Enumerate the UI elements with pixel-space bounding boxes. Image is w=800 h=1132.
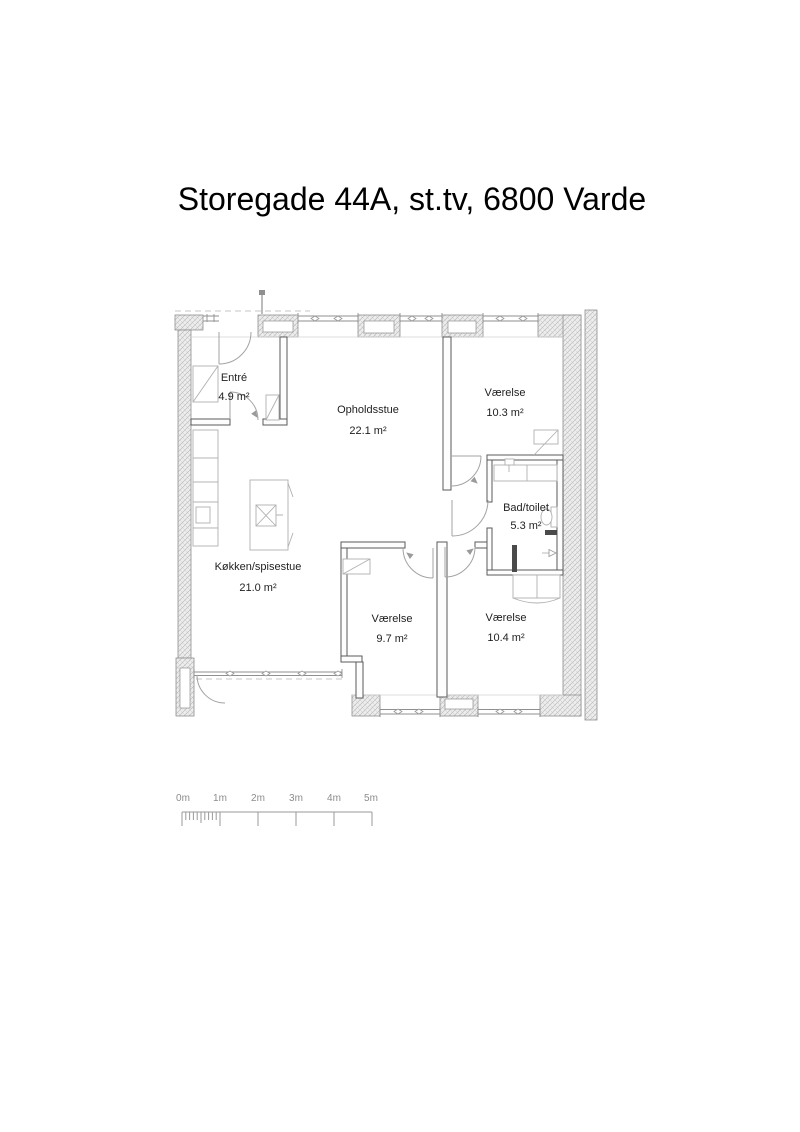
shower-drain-arrow <box>542 550 556 557</box>
room-label-opholdsstue: Opholdsstue 22.1 m² <box>337 404 399 437</box>
room-label-entre: Entré 4.9 m² <box>218 372 250 403</box>
svg-text:10.3 m²: 10.3 m² <box>486 407 524 419</box>
door-bad-toilet <box>452 500 488 536</box>
window-top-2 <box>400 313 442 323</box>
svg-text:10.4 m²: 10.4 m² <box>487 632 525 644</box>
svg-text:5m: 5m <box>364 793 378 804</box>
kitchen-island <box>250 480 293 550</box>
door-vaerelse-sw <box>403 548 433 578</box>
wardrobe-vaerelse-se <box>513 575 560 603</box>
svg-text:4m: 4m <box>327 793 341 804</box>
svg-text:0m: 0m <box>176 793 190 804</box>
svg-text:3m: 3m <box>289 793 303 804</box>
svg-text:9.7 m²: 9.7 m² <box>376 633 408 645</box>
svg-text:5.3 m²: 5.3 m² <box>510 520 542 532</box>
svg-text:Entré: Entré <box>221 372 247 384</box>
room-label-vaerelse-se: Værelse 10.4 m² <box>486 612 527 644</box>
svg-text:Værelse: Værelse <box>372 613 413 625</box>
wardrobe-vaerelse-sw <box>343 559 370 574</box>
svg-text:1m: 1m <box>213 793 227 804</box>
svg-text:Værelse: Værelse <box>485 387 526 399</box>
room-label-koekken: Køkken/spisestue 21.0 m² <box>215 561 302 594</box>
svg-text:Køkken/spisestue: Køkken/spisestue <box>215 561 302 573</box>
window-bottom-1 <box>380 707 440 717</box>
window-balcony-glazing <box>194 669 342 678</box>
floor-plan: Entré 4.9 m² Opholdsstue 22.1 m² Værelse… <box>0 0 800 1132</box>
svg-text:4.9 m²: 4.9 m² <box>218 391 250 403</box>
svg-text:21.0 m²: 21.0 m² <box>239 582 277 594</box>
door-vaerelse-ne <box>451 456 481 486</box>
window-bottom-2 <box>478 707 540 717</box>
window-top-1 <box>298 313 358 323</box>
bathtub <box>494 459 557 481</box>
svg-text:Opholdsstue: Opholdsstue <box>337 404 399 416</box>
wardrobe-vaerelse-ne <box>534 430 558 455</box>
window-top-3 <box>483 313 538 323</box>
door-vaerelse-se <box>445 546 476 577</box>
svg-text:2m: 2m <box>251 793 265 804</box>
svg-text:Bad/toilet: Bad/toilet <box>503 502 549 514</box>
svg-text:Værelse: Værelse <box>486 612 527 624</box>
scale-bar: 0m 1m 2m 3m 4m 5m <box>176 793 378 826</box>
room-label-vaerelse-ne: Værelse 10.3 m² <box>485 387 526 419</box>
svg-text:22.1 m²: 22.1 m² <box>349 425 387 437</box>
kitchen-counter <box>193 430 218 546</box>
window-top-sidelight <box>203 314 219 322</box>
section-marker <box>259 290 265 314</box>
room-label-vaerelse-sw: Værelse 9.7 m² <box>372 613 413 645</box>
